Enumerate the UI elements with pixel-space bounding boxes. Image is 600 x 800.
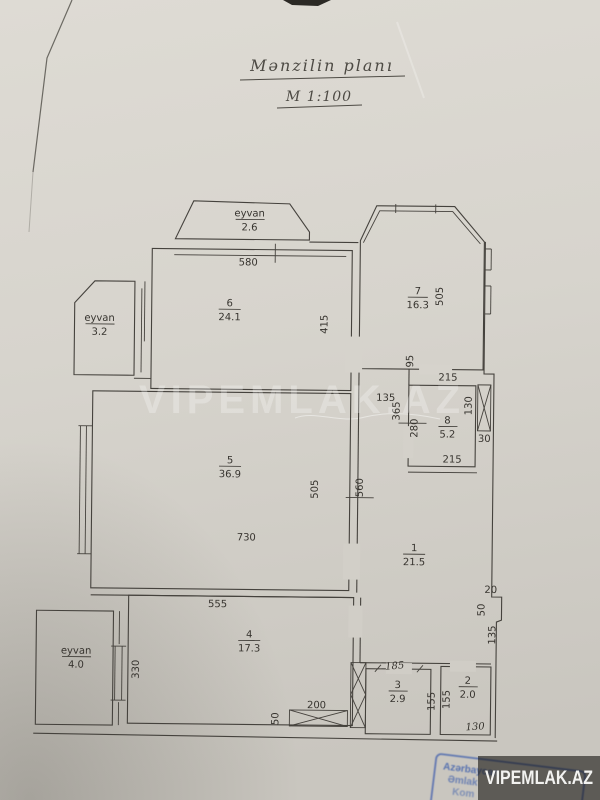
dim-130-room2: 130 [465,721,485,733]
dim-135-rightwall: 135 [487,625,498,644]
center-watermark: VIPEMLAK.AZ [139,378,465,422]
dim-555: 555 [208,599,227,610]
dim-185: 185 [385,660,405,672]
dim-155-room2: 155 [442,690,453,709]
plan-scale: M 1:100 [285,89,352,105]
balcony-bottom-name: eyvan [61,646,92,657]
stamp-line-3: Kom [451,787,475,800]
watermark-badge: VIPEMLAK.AZ [478,756,600,800]
room-6-area: 24.1 [218,312,240,323]
room-5-area: 36.9 [219,469,241,480]
room-4-area: 17.3 [238,643,260,654]
badge-watermark-text: VIPEMLAK.AZ [485,768,593,789]
dim-215-bottom: 215 [443,454,462,465]
dim-200: 200 [307,700,326,711]
photographed-floor-plan-document: Mənzilin planı M 1:100 [0,0,600,800]
room-3-area: 2.9 [390,694,406,705]
dim-20-notch: 20 [484,585,497,596]
dim-505-room7: 505 [435,287,446,306]
room-2-number: 2 [465,676,471,687]
balcony-left-area: 3.2 [91,327,107,338]
room-1-number: 1 [411,543,417,554]
dim-130-shaft: 130 [464,396,475,415]
floor-plan-photo: Mənzilin planı M 1:100 [0,0,600,800]
dim-580: 580 [239,257,258,268]
balcony-left-name: eyvan [84,313,115,324]
room-3-number: 3 [395,680,401,691]
plan-title: Mənzilin planı [249,56,394,75]
dim-50-box: 50 [270,712,281,725]
balcony-top-area: 2.6 [242,222,258,233]
room-5-number: 5 [227,455,233,466]
dim-155-room3: 155 [426,692,437,711]
room-1-area: 21.5 [403,557,425,568]
dim-95: 95 [405,355,416,368]
room-6-number: 6 [226,298,232,309]
dim-505-room5: 505 [310,480,321,499]
dim-560: 560 [355,478,366,497]
balcony-top-name: eyvan [234,208,265,219]
room-4-number: 4 [246,629,252,640]
dim-330: 330 [131,660,142,679]
dim-50-notch: 50 [476,603,487,616]
dim-730: 730 [237,532,256,543]
room-2-area: 2.0 [460,690,476,701]
room-8-area: 5.2 [439,429,455,440]
dim-30: 30 [478,434,491,445]
room-7-number: 7 [415,286,421,297]
room-7-area: 16.3 [407,300,429,311]
dim-415: 415 [319,315,330,334]
balcony-bottom-area: 4.0 [68,660,84,671]
